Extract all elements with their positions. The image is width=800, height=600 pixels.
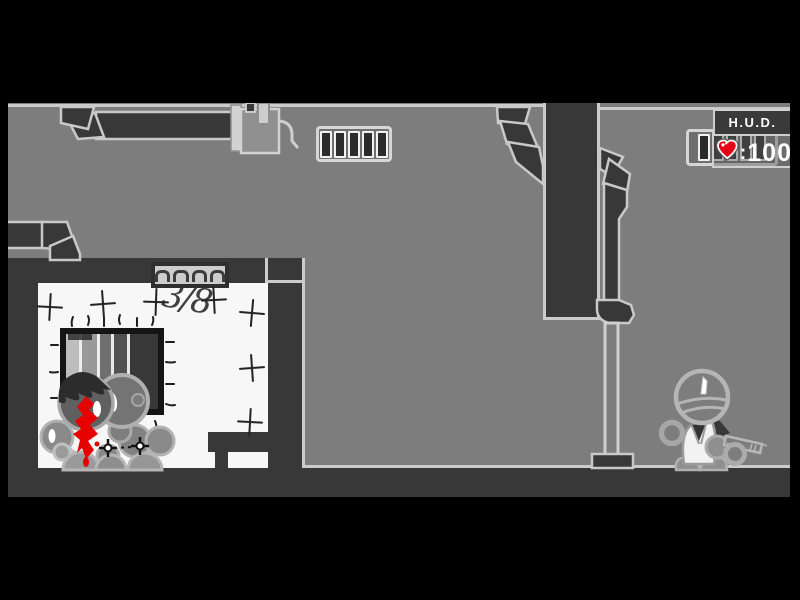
- window-shadow: [68, 334, 92, 340]
- barred-window: [60, 328, 164, 415]
- holding-room-interior: 3/8: [38, 283, 268, 468]
- window-bar: [130, 334, 158, 409]
- plaque-arch: [192, 270, 207, 282]
- vent-slot: [320, 131, 332, 158]
- wall-shelf-leg: [215, 452, 228, 468]
- plaque-arch: [155, 270, 170, 282]
- floor-outline: [302, 465, 790, 468]
- window-bar: [82, 334, 97, 409]
- plaque-arch: [173, 270, 188, 282]
- frame-top: [0, 0, 800, 103]
- wall-pillar: [543, 103, 600, 320]
- frame-bottom: [0, 497, 800, 600]
- scalloped-vent-plaque: [151, 262, 229, 288]
- vent-slot: [334, 131, 346, 158]
- floor-band: [8, 468, 790, 497]
- room-top-outline-h: [268, 280, 302, 283]
- wall-shelf: [208, 432, 268, 452]
- hud-health-value: 100: [747, 139, 792, 168]
- room-outer-outline: [302, 258, 305, 468]
- window-bar: [100, 334, 111, 409]
- frame-left: [0, 0, 8, 600]
- vent-slot: [362, 131, 374, 158]
- hud-separator: :: [740, 142, 747, 165]
- plaque-arch: [210, 270, 225, 282]
- hud-title: H.U.D.: [713, 109, 792, 136]
- game-scene-canvas[interactable]: 3/8: [8, 103, 790, 497]
- window-bar: [114, 334, 127, 409]
- air-vent-grille: [316, 126, 392, 162]
- vent-slot: [348, 131, 360, 158]
- vent-slot: [376, 131, 388, 158]
- game-stage: 3/8: [0, 0, 800, 600]
- ceiling-outline-left: [8, 104, 543, 107]
- window-bar: [66, 334, 79, 409]
- heart-health-icon: [716, 136, 739, 163]
- frame-right: [790, 0, 800, 600]
- vent-slot: [698, 134, 710, 161]
